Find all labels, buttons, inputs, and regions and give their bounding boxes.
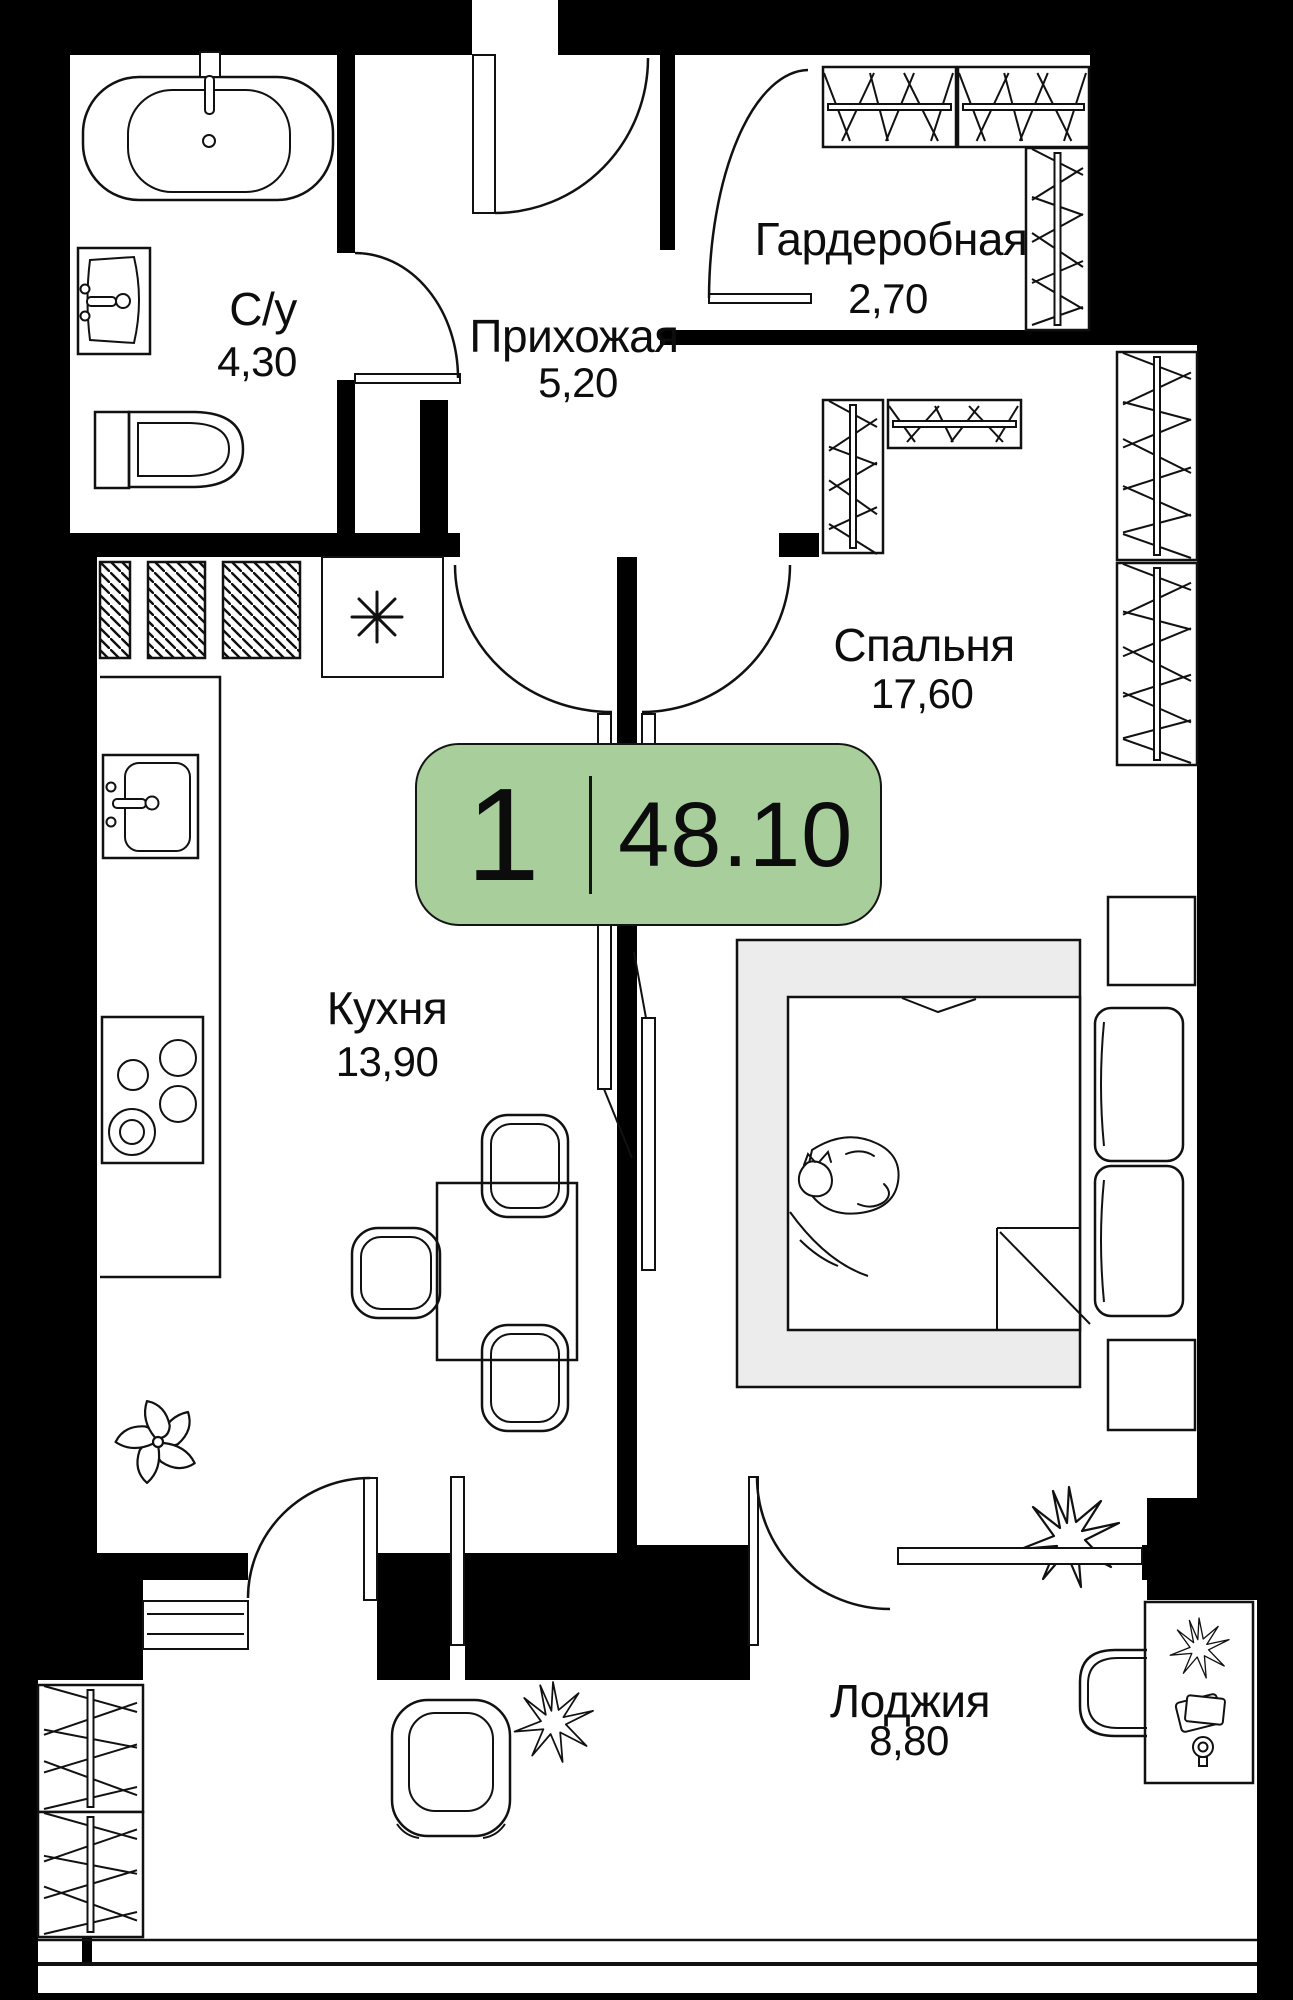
wardrobe-unit-icon <box>38 1685 143 1812</box>
window-jamb <box>749 1477 758 1645</box>
bathtub-faucet-icon <box>200 52 220 77</box>
fridge-asterisk-icon <box>322 557 443 677</box>
wall-bottom-strip <box>0 1993 1293 2000</box>
room-label-wardrobe: Гардеробная <box>755 216 1028 262</box>
entrance-gap <box>472 0 558 55</box>
room-area-hallway: 5,20 <box>538 362 618 404</box>
badge-rooms-count: 1 <box>417 769 589 901</box>
wall-stub-bedroom-door <box>779 533 819 557</box>
wardrobe-unit-icon <box>1117 352 1197 560</box>
loggia-window-sill <box>143 1601 248 1649</box>
kitchen-balcony-gap <box>248 1553 377 1580</box>
wall-block-right <box>1147 1498 1293 1600</box>
wall-kitchen-bottom-left <box>0 1553 143 1680</box>
wardrobe-door-leaf <box>709 294 811 303</box>
wall-panel <box>598 903 611 1089</box>
wardrobe-unit-icon <box>888 400 1021 448</box>
vent-shaft-icon <box>100 562 130 658</box>
vent-shaft-icon <box>223 562 300 658</box>
room-area-bathroom: 4,30 <box>217 341 297 383</box>
wardrobe-unit-icon <box>1026 148 1089 330</box>
entrance-door-leaf <box>473 55 495 213</box>
room-label-kitchen: Кухня <box>327 985 448 1031</box>
nightstand <box>1108 897 1195 985</box>
floorplan-drawing <box>0 0 1293 2000</box>
wardrobe-unit-icon <box>38 1812 143 1937</box>
bathroom-door-leaf <box>355 374 460 383</box>
wardrobe-unit-icon <box>958 67 1089 147</box>
bathroom-door-gap <box>337 253 355 380</box>
room-area-loggia: 8,80 <box>869 1720 949 1762</box>
badge-total-area: 48.10 <box>592 789 881 881</box>
wardrobe-unit-icon <box>1117 563 1197 765</box>
wall-panel <box>642 1018 655 1270</box>
room-label-bathroom: С/у <box>229 286 297 332</box>
wall-band-bathroom <box>92 533 460 557</box>
room-area-bedroom: 17,60 <box>871 673 974 715</box>
room-area-wardrobe: 2,70 <box>848 278 928 320</box>
kitchen-balcony-leaf <box>364 1478 377 1600</box>
wardrobe-unit-icon <box>823 67 956 147</box>
kitchen-door-gap <box>460 533 617 557</box>
wall-kitchen-bottom-right <box>465 1553 750 1680</box>
room-label-hallway: Прихожая <box>469 313 678 359</box>
room-label-bedroom: Спальня <box>833 622 1014 668</box>
wall-shaft <box>420 400 448 555</box>
area-badge: 1 48.10 <box>415 743 882 926</box>
room-area-kitchen: 13,90 <box>336 1041 439 1083</box>
window-jamb <box>451 1477 464 1645</box>
room-hallway <box>355 55 660 557</box>
balcony-door-leaf <box>898 1548 1142 1564</box>
nightstand <box>1108 1340 1195 1430</box>
wall-kitchen-bottom-mid <box>377 1553 450 1680</box>
bedroom-door-gap <box>637 533 779 557</box>
wardrobe-unit-icon <box>823 400 883 554</box>
vent-shaft-icon <box>148 562 205 658</box>
floorplan-canvas: С/у 4,30 Прихожая 5,20 Гардеробная 2,70 … <box>0 0 1293 2000</box>
